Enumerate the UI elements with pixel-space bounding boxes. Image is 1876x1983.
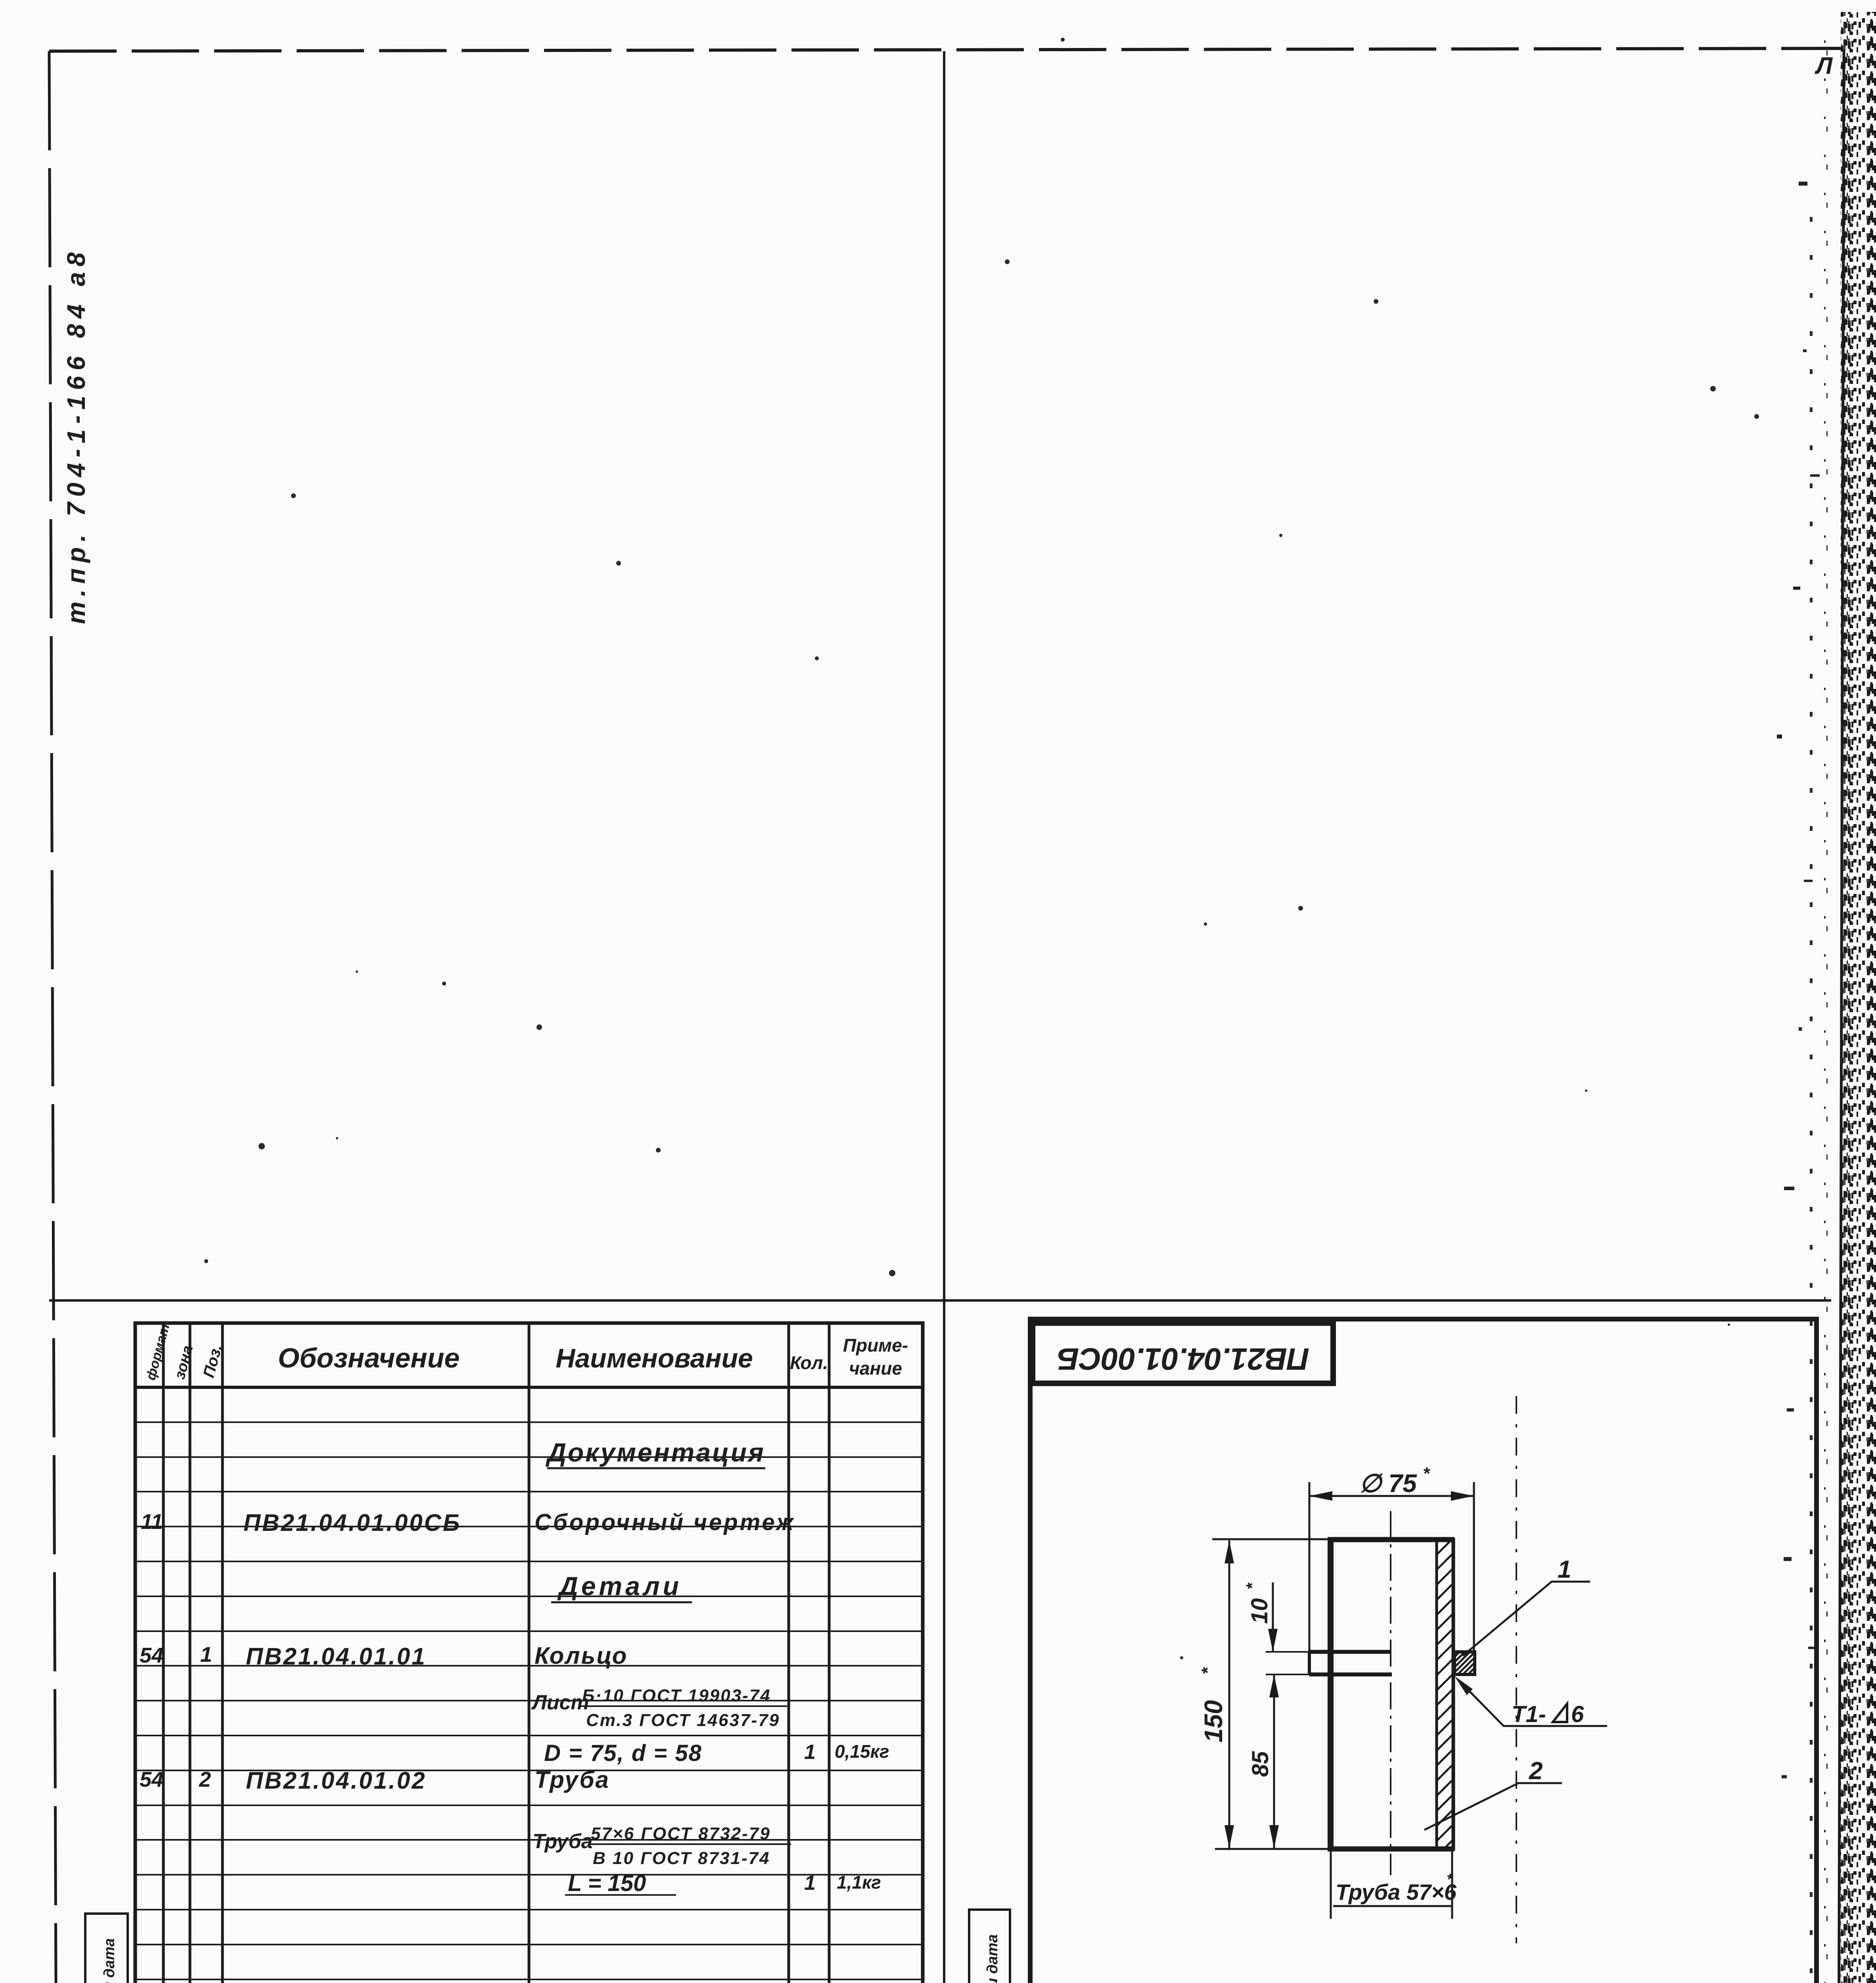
svg-text:Детали: Детали	[557, 1571, 682, 1601]
svg-text:57×6 ГОСТ 8732-79: 57×6 ГОСТ 8732-79	[591, 1824, 771, 1843]
svg-text:Труба: Труба	[533, 1830, 593, 1853]
svg-text:*: *	[1423, 1464, 1430, 1483]
svg-text:Кольцо: Кольцо	[535, 1642, 628, 1669]
svg-text:1: 1	[804, 1872, 816, 1895]
svg-text:1: 1	[1558, 1556, 1571, 1583]
svg-text:∅ 75: ∅ 75	[1359, 1469, 1417, 1498]
svg-text:11: 11	[141, 1510, 163, 1534]
svg-text:*: *	[1243, 1582, 1261, 1590]
svg-text:54: 54	[140, 1644, 163, 1667]
svg-text:ПВ21.04.01.01: ПВ21.04.01.01	[246, 1643, 426, 1670]
svg-text:Подп. и дата: Подп. и дата	[984, 1934, 1001, 1983]
svg-text:Т1-: Т1-	[1512, 1701, 1546, 1727]
svg-text:т.пр. 704-1-166 84 а8: т.пр. 704-1-166 84 а8	[62, 247, 90, 624]
svg-text:ПВ21.04.01.02: ПВ21.04.01.02	[246, 1767, 426, 1794]
svg-text:6: 6	[1571, 1701, 1584, 1727]
svg-text:Документация: Документация	[545, 1438, 765, 1467]
svg-text:Б·10 ГОСТ 19903-74: Б·10 ГОСТ 19903-74	[582, 1686, 771, 1705]
svg-text:Обозначение: Обозначение	[278, 1342, 460, 1373]
svg-text:Подп. и дата: Подп. и дата	[101, 1938, 118, 1983]
svg-text:*: *	[1447, 1871, 1454, 1888]
svg-text:Кол.: Кол.	[790, 1352, 828, 1373]
svg-text:1: 1	[200, 1643, 212, 1667]
svg-text:чание: чание	[849, 1358, 902, 1379]
svg-text:2: 2	[1529, 1757, 1543, 1785]
svg-text:ПВ21.04.01.00СБ: ПВ21.04.01.00СБ	[243, 1509, 461, 1536]
svg-text:L = 150: L = 150	[568, 1870, 646, 1896]
svg-text:*: *	[1198, 1667, 1217, 1674]
svg-text:54: 54	[140, 1768, 163, 1791]
svg-text:Приме-: Приме-	[843, 1335, 908, 1356]
svg-text:Труба: Труба	[535, 1766, 610, 1793]
svg-text:ПВ21.04.01.00СБ: ПВ21.04.01.00СБ	[1057, 1342, 1309, 1377]
svg-text:Ст.3 ГОСТ 14637-79: Ст.3 ГОСТ 14637-79	[586, 1711, 780, 1730]
svg-text:85: 85	[1247, 1751, 1273, 1777]
svg-text:0,15кг: 0,15кг	[835, 1741, 889, 1762]
svg-text:Наименование: Наименование	[556, 1343, 753, 1373]
svg-text:Труба 57×6: Труба 57×6	[1336, 1879, 1457, 1904]
svg-text:Сборочный чертеж: Сборочный чертеж	[535, 1509, 795, 1535]
svg-text:150: 150	[1199, 1700, 1228, 1743]
svg-text:10: 10	[1247, 1598, 1272, 1624]
svg-text:В 10 ГОСТ 8731-74: В 10 ГОСТ 8731-74	[593, 1849, 770, 1868]
svg-text:Лист: Лист	[531, 1691, 589, 1714]
svg-text:1: 1	[804, 1741, 816, 1764]
svg-text:1,1кг: 1,1кг	[837, 1872, 881, 1893]
svg-text:D = 75, d = 58: D = 75, d = 58	[544, 1740, 702, 1766]
svg-text:2: 2	[199, 1768, 211, 1791]
svg-text:Л: Л	[1815, 52, 1833, 79]
